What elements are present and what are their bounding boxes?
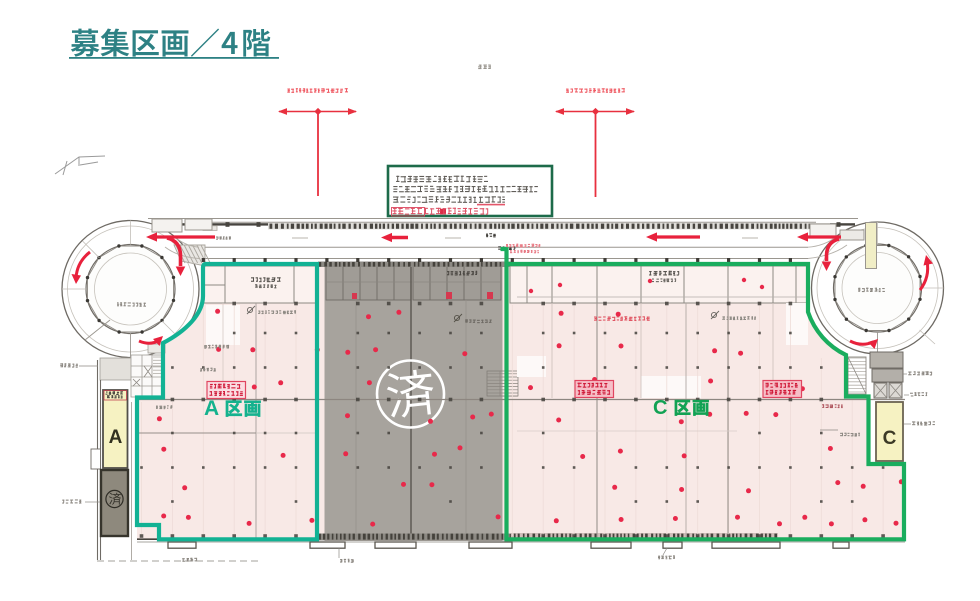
svg-text:C: C xyxy=(883,428,897,449)
svg-text:C: C xyxy=(653,397,667,419)
svg-text:A: A xyxy=(109,427,123,448)
svg-text:A: A xyxy=(204,397,219,420)
